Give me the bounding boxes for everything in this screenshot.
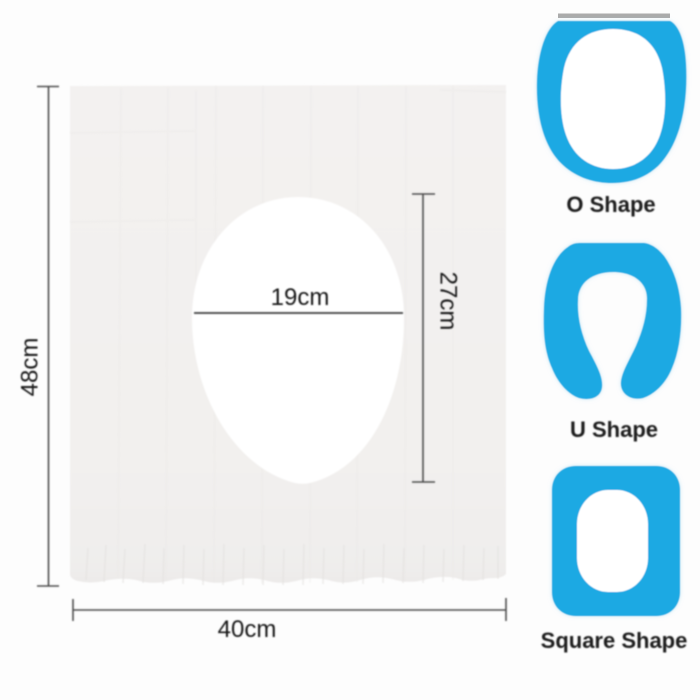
svg-text:Square Shape: Square Shape (541, 628, 688, 653)
svg-text:48cm: 48cm (16, 338, 43, 397)
svg-text:U Shape: U Shape (570, 417, 658, 442)
svg-text:O Shape: O Shape (566, 192, 655, 217)
svg-text:40cm: 40cm (218, 616, 277, 643)
svg-text:27cm: 27cm (435, 272, 462, 331)
svg-text:19cm: 19cm (271, 284, 330, 311)
